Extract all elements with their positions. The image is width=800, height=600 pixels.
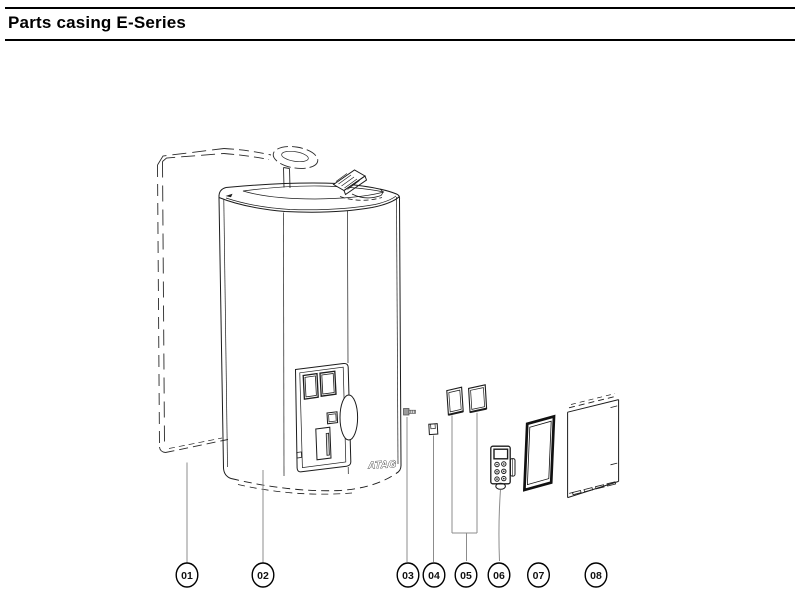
callout-03: 03 [397,563,419,587]
callout-label: 02 [257,570,269,582]
mounting-bracket-loop [272,144,320,172]
callout-01: 01 [176,563,198,587]
brand-logo: ATAG [367,459,397,472]
part-02-front-casing: ATAG [219,170,401,494]
bracket-post [284,168,291,189]
callout-label: 01 [181,570,193,582]
part-03-screw [404,409,416,416]
callout-02: 02 [252,563,274,587]
vent-slots [573,482,616,495]
callout-07: 07 [528,563,550,587]
leader-05 [452,413,477,561]
exploded-parts-diagram: ATAG [0,0,800,600]
leader-06 [499,490,501,562]
part-05-display-windows [447,385,487,415]
front-seam-left [284,213,285,477]
part-01-back-panel [158,144,320,453]
callout-label: 06 [493,570,505,582]
callout-label: 07 [533,570,545,582]
callout-label: 03 [402,570,414,582]
control-panel-recess [296,363,358,471]
callout-label: 04 [428,570,440,582]
part-07-seal-frame [524,416,554,490]
part-08-side-panel [568,394,619,498]
callouts: 01 02 03 04 05 06 07 08 [176,563,607,587]
part-04-clip [429,424,438,435]
callout-label: 08 [590,570,602,582]
top-face-inner-line [243,186,384,199]
callout-label: 05 [460,570,472,582]
callout-06: 06 [488,563,510,587]
callout-04: 04 [423,563,445,587]
callout-05: 05 [455,563,477,587]
thumb-grip [340,395,358,440]
callout-08: 08 [585,563,607,587]
part-06-control-keypad [491,446,515,489]
